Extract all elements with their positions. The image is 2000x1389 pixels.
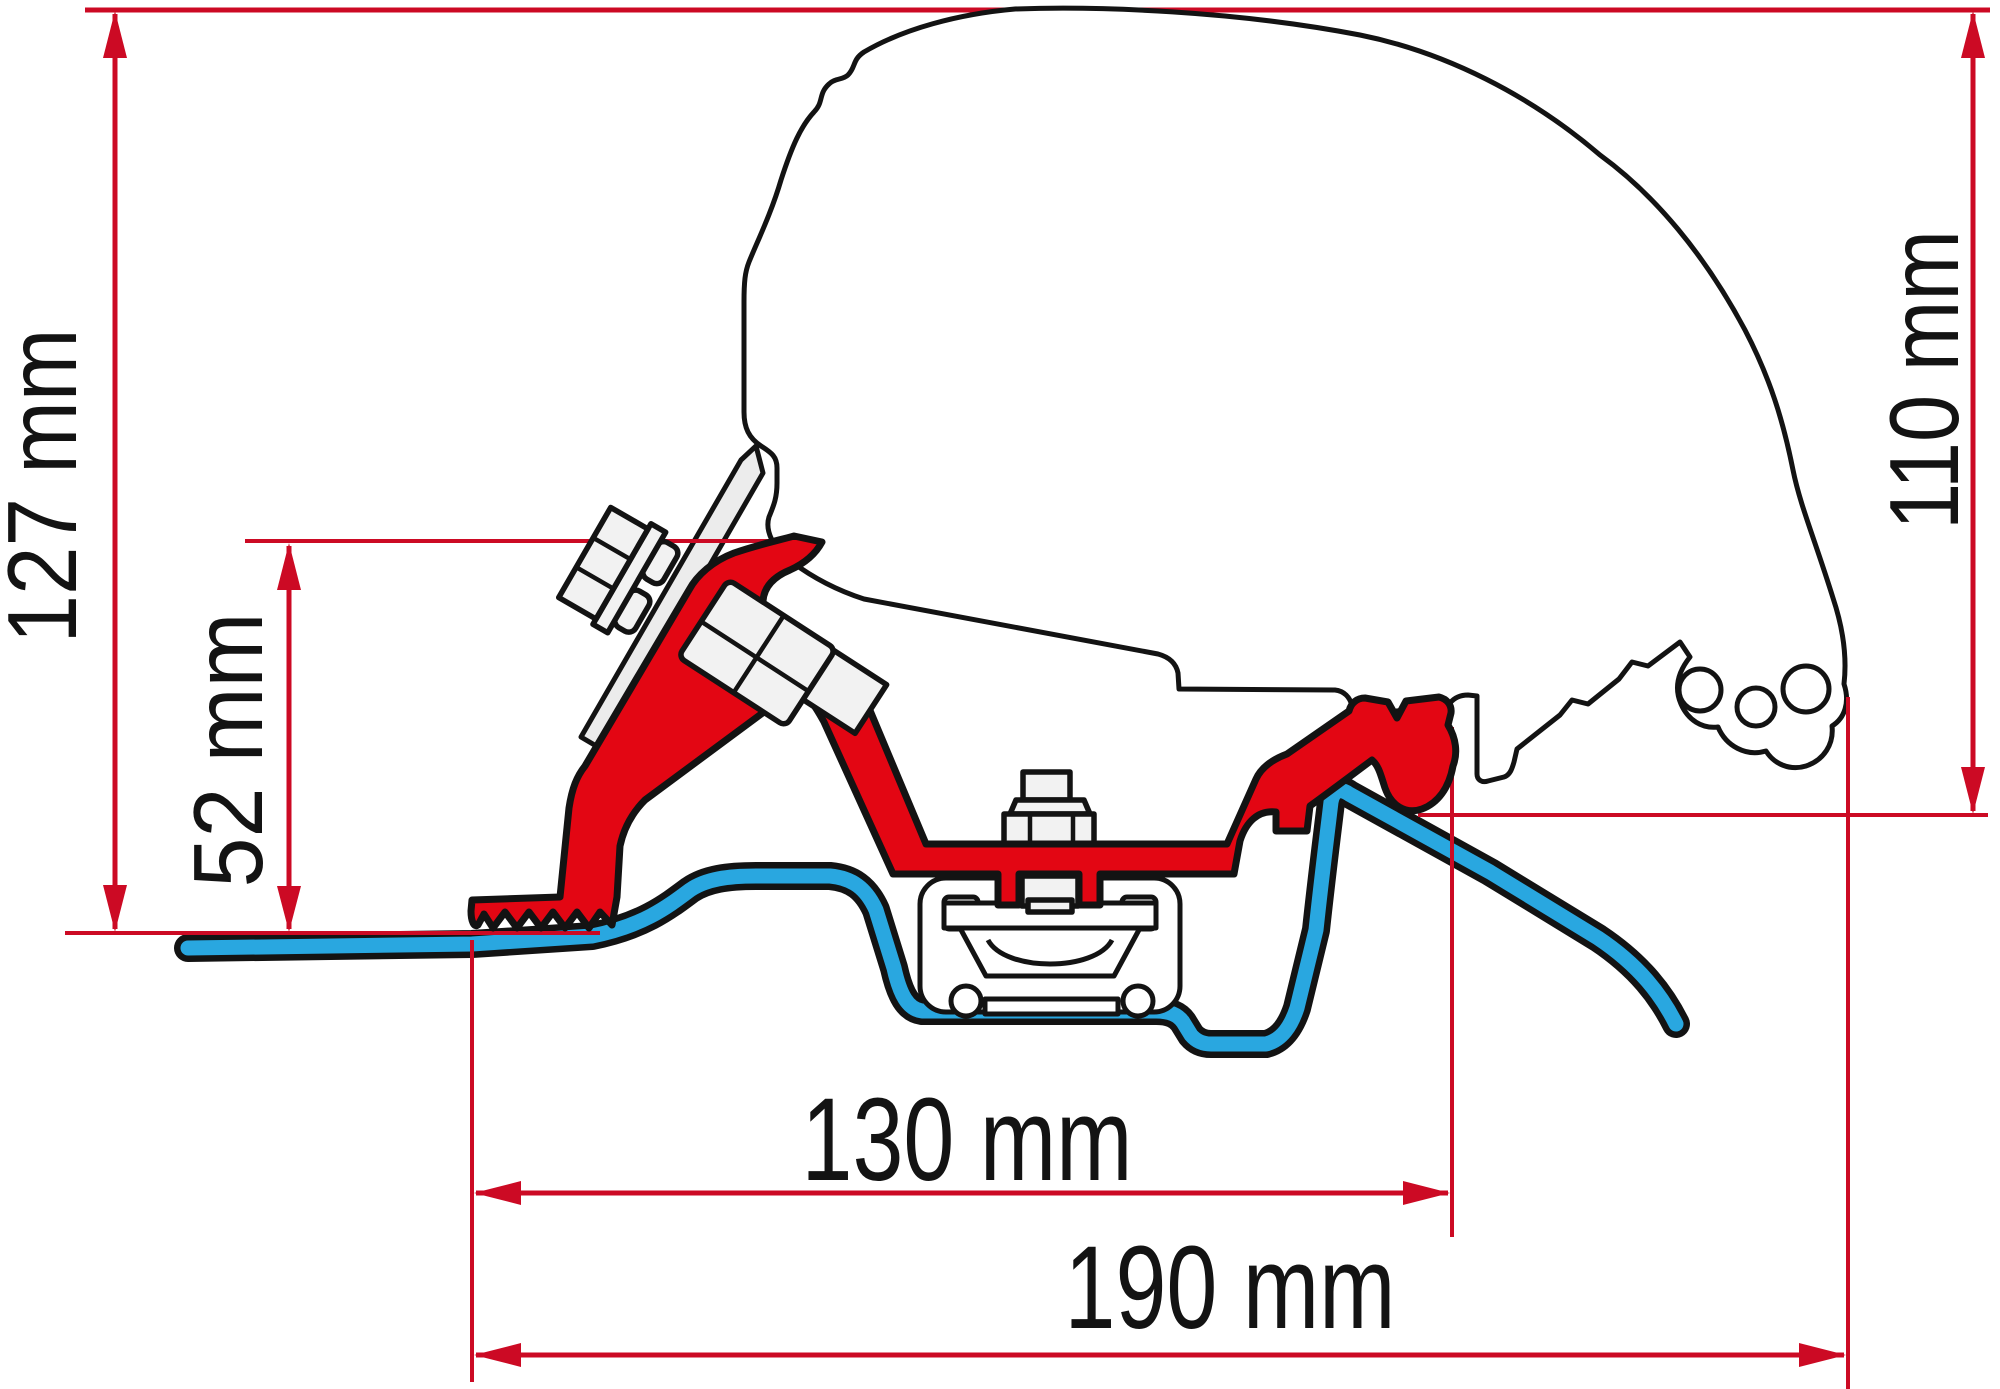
bolt-shaft-washer bbox=[1028, 900, 1072, 912]
dim-127-label: 127 mm bbox=[0, 329, 97, 644]
dim-130-arrow-right-icon bbox=[1403, 1181, 1450, 1205]
dim-110-label: 110 mm bbox=[1869, 230, 1979, 530]
dim-190-label: 190 mm bbox=[1065, 1222, 1396, 1354]
van-outline bbox=[744, 8, 1847, 781]
dim-127-arrow-down-icon bbox=[103, 885, 127, 932]
rail-curl-icon bbox=[1783, 666, 1829, 712]
dim-52-arrow-up-icon bbox=[277, 543, 301, 590]
clamp-base-plate bbox=[985, 999, 1118, 1014]
bolt-square-head bbox=[1023, 772, 1070, 800]
bolt-hex-nut bbox=[1004, 814, 1094, 844]
dim-190-arrow-right-icon bbox=[1799, 1343, 1846, 1367]
dim-190-arrow-left-icon bbox=[474, 1343, 521, 1367]
diagram-page: 127 mm 52 mm 110 mm 130 mm 190 mm bbox=[0, 0, 2000, 1389]
dim-127-arrow-up-icon bbox=[103, 11, 127, 58]
clamp-roller-icon bbox=[1123, 986, 1153, 1016]
dim-110-arrow-down-icon bbox=[1961, 767, 1985, 814]
rail-curl-icon bbox=[1679, 669, 1721, 711]
dim-130-arrow-left-icon bbox=[474, 1181, 521, 1205]
diagram-canvas: 127 mm 52 mm 110 mm 130 mm 190 mm bbox=[0, 0, 2000, 1389]
van-body-profile bbox=[744, 8, 1847, 781]
dim-52-label: 52 mm bbox=[173, 613, 283, 888]
rail-curl-icon bbox=[1737, 688, 1775, 726]
dim-52-arrow-down-icon bbox=[277, 886, 301, 932]
dim-130-label: 130 mm bbox=[802, 1074, 1133, 1206]
clamp-roller-icon bbox=[951, 986, 981, 1016]
dim-110-arrow-up-icon bbox=[1961, 11, 1985, 58]
clamp-wedge bbox=[960, 928, 1140, 976]
